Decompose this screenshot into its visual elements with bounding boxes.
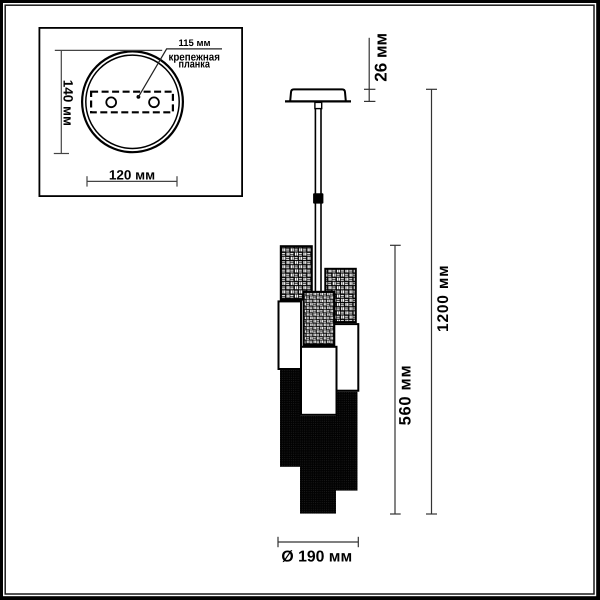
svg-text:560 мм: 560 мм: [397, 365, 415, 426]
svg-text:115 мм: 115 мм: [178, 38, 210, 49]
svg-text:Ø 190 мм: Ø 190 мм: [281, 549, 352, 566]
svg-text:26 мм: 26 мм: [371, 33, 390, 82]
svg-text:1200 мм: 1200 мм: [435, 265, 452, 332]
svg-text:120 мм: 120 мм: [109, 168, 155, 183]
svg-text:планка: планка: [178, 58, 210, 70]
svg-text:140 мм: 140 мм: [60, 80, 75, 126]
